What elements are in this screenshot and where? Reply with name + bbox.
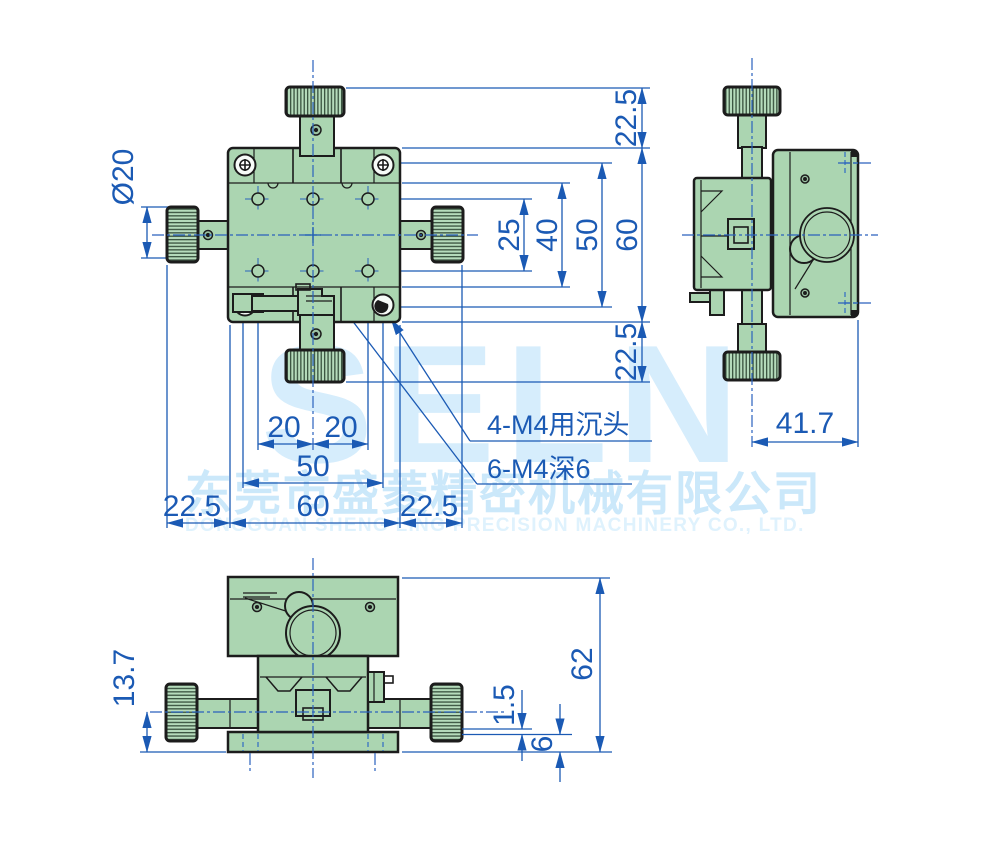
dim-body-depth: 41.7 bbox=[776, 407, 834, 440]
dim-hole-col-left: 20 bbox=[267, 411, 300, 444]
callout-tapped-holes: 6-M4深6 bbox=[487, 454, 591, 484]
side-foot bbox=[710, 288, 724, 315]
front-right-tab bbox=[368, 672, 393, 702]
technical-drawing-page: SELN 东莞市盛菱精密机械有限公司 DONGGUAN SHENG LING P… bbox=[0, 0, 1001, 853]
dim-hole-row-spacing: 25 bbox=[493, 218, 526, 251]
dim-body-width: 60 bbox=[296, 490, 329, 523]
front-view: 13.7 62 1.5 6 bbox=[108, 558, 612, 782]
bottom-knob-cap bbox=[286, 350, 344, 382]
watermark-company-en: DONGGUAN SHENG LING PRECISION MACHINERY … bbox=[185, 515, 805, 536]
top-knob-shaft bbox=[300, 116, 334, 156]
dim-knob-diameter: Ø20 bbox=[107, 149, 140, 206]
dim-screw-spacing-vertical: 50 bbox=[571, 218, 604, 251]
callout-counterbore-holes: 4-M4用沉头 bbox=[487, 410, 630, 440]
side-corner-tick bbox=[851, 310, 857, 316]
counterbore-screw bbox=[235, 155, 256, 176]
front-left-shaft bbox=[197, 699, 258, 728]
dim-right-knob-offset: 22.5 bbox=[400, 490, 458, 523]
dim-left-knob-offset: 22.5 bbox=[163, 490, 221, 523]
dim-plate-height: 40 bbox=[531, 218, 564, 251]
counterbore-screw bbox=[373, 295, 394, 316]
side-clamp-block bbox=[728, 219, 754, 249]
counterbore-screw bbox=[373, 155, 394, 176]
dim-screw-spacing-horizontal: 50 bbox=[296, 450, 329, 483]
dim-knob-center-height: 13.7 bbox=[108, 649, 141, 707]
dim-base-thickness: 6 bbox=[526, 736, 559, 753]
dim-top-knob-offset: 22.5 bbox=[610, 89, 643, 147]
top-knob-cap bbox=[286, 87, 344, 116]
dim-bottom-knob-offset: 22.5 bbox=[610, 323, 643, 381]
dim-body-height: 60 bbox=[611, 218, 644, 251]
dim-hole-col-right: 20 bbox=[324, 411, 357, 444]
dim-base-clearance: 1.5 bbox=[488, 684, 521, 726]
xy-stage-dimension-drawing: SELN 东莞市盛菱精密机械有限公司 DONGGUAN SHENG LING P… bbox=[0, 0, 1001, 853]
side-corner-tick bbox=[851, 151, 857, 157]
dim-total-height: 62 bbox=[566, 647, 599, 680]
